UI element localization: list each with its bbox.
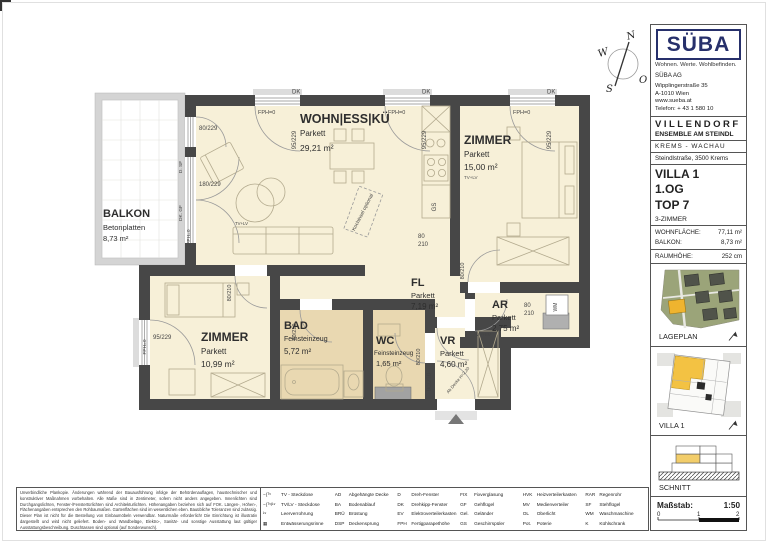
legend-label: Regenrohr — [599, 492, 621, 497]
region-section: KREMS - WACHAU — [651, 140, 746, 152]
room-material: Feinsteinzeug — [284, 336, 328, 343]
project-region: KREMS - WACHAU — [655, 143, 742, 150]
highlighted-floor-level — [676, 454, 700, 463]
room-label-fl: FL — [411, 277, 425, 289]
tv-socket-icon: −(ᵀᵛ — [263, 492, 281, 497]
scale-label: Maßstab: — [657, 501, 693, 510]
dim-door-w: 80 — [418, 234, 425, 240]
dim-d-sf: D. SF — [178, 161, 184, 173]
brand-section: SÜBA Wohnen. Werte. Wohlbefinden. SÜBA A… — [651, 25, 746, 116]
compass-needle — [615, 42, 629, 86]
area-label: BALKON: — [655, 238, 682, 247]
dim-door: 80/210 — [460, 263, 466, 280]
room-material: Parkett — [440, 349, 465, 358]
room-material: Betonplatten — [103, 223, 145, 232]
compass-s: S — [606, 84, 613, 95]
area-row: BALKON: 8,73 m² — [655, 238, 742, 247]
scale-tick-2: 2 — [736, 512, 740, 518]
room-material: Parkett — [201, 347, 227, 356]
room-material: Feinsteinzeug — [374, 350, 414, 357]
legend-abbr: SF — [585, 502, 599, 507]
legend-abbr: RAR — [585, 492, 599, 497]
legend-abbr: EV — [397, 511, 411, 516]
room-label-balkon: BALKON — [103, 208, 150, 220]
unit-top: TOP 7 — [655, 198, 742, 214]
drainage-icon: ▦ — [263, 521, 281, 526]
dim-door: 80/210 — [416, 349, 422, 366]
scale-section: Maßstab: 1:50 0 1 2 — [651, 496, 746, 531]
room-area: 2,75 m² — [492, 324, 519, 333]
north-arrow-icon — [727, 420, 738, 431]
legend-label: Bodenablauf — [349, 502, 375, 507]
project-section: VILLENDORF ENSEMBLE AM STEINDL — [651, 116, 746, 140]
legend-abbr: AD — [335, 492, 349, 497]
legend-label: Deckensprung — [349, 521, 379, 526]
legend-column: FIXFixverglasung GFGehflügel Gel.Gelände… — [460, 490, 521, 528]
compass-n: N — [624, 29, 638, 43]
dim-dk: DK — [292, 90, 300, 96]
brand-company: SÜBA AG — [655, 72, 742, 79]
lageplan-section: LAGEPLAN — [651, 263, 746, 346]
legend-column: HVKHeizverteilerkasten MVMedienverteiler… — [523, 490, 584, 528]
title-block: SÜBA Wohnen. Werte. Wohlbefinden. SÜBA A… — [650, 24, 747, 531]
legend-abbr: Gel. — [460, 511, 474, 516]
unit-floor: 1.OG — [655, 182, 742, 198]
schnitt-thumbnail — [656, 440, 742, 482]
legend-abbr: MV — [523, 502, 537, 507]
legend-label: Abgehängte Decke — [349, 492, 389, 497]
legend-label: Entwässerungsrinne — [281, 521, 323, 526]
area-label: WOHNFLÄCHE: — [655, 228, 701, 237]
dim-fph: FPH=0 — [388, 110, 405, 116]
room-area: 5,72 m² — [284, 347, 311, 356]
dim-dk-gf: DK. GF — [178, 205, 184, 221]
legend-label: Drehkipp-Fenster — [411, 502, 447, 507]
dim-fix: FIX — [186, 107, 192, 115]
dim-balcony-door: 180/229 — [199, 182, 221, 188]
room-area: 4,60 m² — [440, 360, 467, 369]
room-label-wohnesskueche: WOHN|ESS|KÜ — [300, 111, 390, 126]
dim-window: 95/229 — [547, 130, 553, 149]
legend-label: Gehflügel — [474, 502, 494, 507]
raumhoehe-row: RAUMHÖHE: 252 cm — [655, 252, 742, 261]
legend-label: TV/LV - Steckdose — [281, 502, 320, 507]
project-street: Steindlstraße, 3500 Krems — [655, 155, 742, 162]
suba-logo: SÜBA — [656, 29, 741, 60]
unit-villa: VILLA 1 — [655, 167, 742, 183]
dim-fph: FPH=0 — [142, 339, 148, 354]
legend-abbr: K — [585, 521, 599, 526]
brand-website: www.sueba.at — [655, 98, 742, 106]
brand-phone: Telefon: + 43 1 580 10 — [655, 106, 742, 114]
legend-abbr: OL — [523, 511, 537, 516]
dim-door-h: 210 — [418, 242, 429, 248]
legend-label: Leerverrohrung — [281, 511, 313, 516]
dishwasher-label: GS — [432, 203, 438, 212]
villa-label: VILLA 1 — [659, 421, 685, 430]
highlighted-building — [668, 299, 685, 314]
dim-dk: DK — [422, 90, 430, 96]
dim-entry-door: 90/210 — [427, 372, 433, 391]
brand-address: Wipplingerstraße 35 A-1010 Wien www.sueb… — [655, 83, 742, 114]
unit-type: 3-ZIMMER — [655, 216, 742, 223]
legend-label: Waschmaschine — [599, 511, 633, 516]
project-name: VILLENDORF — [655, 119, 742, 130]
legend-label: Kühlschrank — [599, 521, 625, 526]
dim-fph: FPH=0 — [513, 110, 530, 116]
address-line: Wipplingerstraße 35 — [655, 83, 742, 91]
villa-section: VILLA 1 — [651, 346, 746, 435]
legend-bar: Unverbindliche Plankopie. Änderungen wäh… — [16, 487, 649, 531]
dim-door: 80/210 — [227, 285, 233, 302]
room-label-zimmer-top: ZIMMER — [464, 133, 512, 147]
legend-abbr: Pot. — [523, 521, 537, 526]
legend-symbol-column: −(ᵀᵛTV - Steckdose −(ᵀᵛ/ᴸᵛTV/LV - Steckd… — [263, 490, 333, 528]
address-line: A-1010 Wien — [655, 91, 742, 99]
areas-section: WOHNFLÄCHE: 77,11 m² BALKON: 8,73 m² — [651, 225, 746, 249]
scale-bar: 0 1 2 — [655, 510, 743, 525]
room-material: Parkett — [411, 291, 436, 300]
area-row: WOHNFLÄCHE: 77,11 m² — [655, 228, 742, 237]
room-area: 7,19 m² — [411, 302, 438, 311]
scale-row: Maßstab: 1:50 — [655, 499, 742, 510]
legend-label: Geländer — [474, 511, 493, 516]
room-area: 29,21 m² — [300, 143, 334, 153]
socket-label: TV+LV — [464, 175, 478, 180]
dim-door-h: 210 — [524, 311, 535, 317]
room-material: Parkett — [300, 129, 326, 138]
lageplan-thumbnail — [655, 268, 743, 330]
room-area: 15,00 m² — [464, 162, 498, 172]
legend-label: Elektroverteilerkasten — [411, 511, 456, 516]
dim-door: 80/210 — [292, 324, 298, 341]
compass-o: O — [639, 75, 647, 86]
legend-abbr: GS — [460, 521, 474, 526]
legend-column: RARRegenrohr SFStehflügel WMWaschmaschin… — [585, 490, 646, 528]
plan-disclaimer: Unverbindliche Plankopie. Änderungen wäh… — [17, 488, 261, 530]
legend-abbr: GF — [460, 502, 474, 507]
room-label-wc: WC — [376, 335, 394, 347]
legend-label: Fixverglasung — [474, 492, 503, 497]
legend-label: Geschirrspüler — [474, 521, 504, 526]
raumhoehe-value: 252 cm — [722, 252, 742, 261]
legend-label: Dreh-Fenster — [411, 492, 439, 497]
north-arrow-icon — [727, 331, 738, 342]
washing-machine-label: WM — [553, 303, 559, 312]
room-material: Parkett — [464, 150, 490, 159]
room-label-zimmer-low: ZIMMER — [201, 330, 249, 344]
scale-tick-0: 0 — [657, 512, 661, 518]
area-value: 8,73 m² — [721, 238, 742, 247]
lageplan-caption: LAGEPLAN — [655, 330, 742, 344]
dim-window: 95/229 — [292, 130, 298, 149]
legend-label: Stehflügel — [599, 502, 620, 507]
room-area: 8,73 m² — [103, 234, 129, 243]
conduit-icon: ᴸᵛ — [263, 511, 281, 516]
dim-balcony-door: 80/229 — [199, 126, 218, 132]
plan-sheet: BALKON Betonplatten 8,73 m² WOHN|ESS|KÜ … — [0, 0, 768, 543]
area-value: 77,11 m² — [718, 228, 742, 237]
schnitt-caption: SCHNITT — [655, 482, 742, 494]
room-area: 10,99 m² — [201, 359, 235, 369]
legend-label: TV - Steckdose — [281, 492, 313, 497]
legend-label: Poterie — [537, 521, 552, 526]
mv-ev-label: MV+EV — [476, 332, 491, 337]
room-label-ar: AR — [492, 299, 508, 311]
legend-abbr: HVK — [523, 492, 537, 497]
legend-label: Brüstung — [349, 511, 368, 516]
legend-abbr: FPH — [397, 521, 411, 526]
floor-plan: BALKON Betonplatten 8,73 m² WOHN|ESS|KÜ … — [85, 85, 597, 487]
schnitt-label: SCHNITT — [659, 483, 691, 492]
legend-label: Medienverteiler — [537, 502, 569, 507]
dim-dk: DK — [547, 90, 555, 96]
legend-label: Heizverteilerkasten — [537, 492, 577, 497]
tvlv-socket-icon: −(ᵀᵛ/ᴸᵛ — [263, 502, 281, 507]
dim-door-w: 80 — [524, 303, 531, 309]
raumhoehe-section: RAUMHÖHE: 252 cm — [651, 249, 746, 263]
compass-rose: N W S O — [592, 26, 654, 96]
legend-abbr: BA — [335, 502, 349, 507]
legend-table: −(ᵀᵛTV - Steckdose −(ᵀᵛ/ᴸᵛTV/LV - Steckd… — [261, 488, 648, 530]
legend-column: DDreh-Fenster DKDrehkipp-Fenster EVElekt… — [397, 490, 458, 528]
dim-window: 95/229 — [153, 335, 172, 341]
raumhoehe-label: RAUMHÖHE: — [655, 252, 693, 261]
room-area: 1,65 m² — [376, 359, 402, 368]
dim-fph: FPH=0 — [186, 229, 192, 244]
legend-label: Fertigparapethöhe — [411, 521, 449, 526]
legend-label: Oberlicht — [537, 511, 556, 516]
legend-abbr: FIX — [460, 492, 474, 497]
scale-value: 1:50 — [724, 501, 740, 510]
legend-abbr: WM — [585, 511, 599, 516]
corner-crop-mark — [0, 0, 11, 11]
dim-fph: FPH=0 — [258, 110, 275, 116]
room-label-vr: VR — [440, 335, 455, 347]
room-material: Parkett — [492, 313, 517, 322]
brand-tagline: Wohnen. Werte. Wohlbefinden. — [655, 62, 742, 68]
villa-thumbnail — [655, 351, 743, 419]
legend-abbr: BRÜ — [335, 511, 349, 516]
legend-column: ADAbgehängte Decke BABodenablauf BRÜBrüs… — [335, 490, 396, 528]
compass-w: W — [597, 46, 611, 60]
unit-section: VILLA 1 1.OG TOP 7 3-ZIMMER — [651, 164, 746, 226]
legend-abbr: D — [397, 492, 411, 497]
lageplan-label: LAGEPLAN — [659, 332, 698, 341]
legend-abbr: DK — [397, 502, 411, 507]
street-section: Steindlstraße, 3500 Krems — [651, 152, 746, 164]
socket-label: TV+LV — [235, 221, 248, 226]
villa-caption: VILLA 1 — [655, 419, 742, 433]
legend-abbr: DSP — [335, 521, 349, 526]
project-ensemble: ENSEMBLE AM STEINDL — [655, 131, 742, 138]
dim-window: 95/229 — [422, 130, 428, 149]
schnitt-section: SCHNITT — [651, 435, 746, 496]
